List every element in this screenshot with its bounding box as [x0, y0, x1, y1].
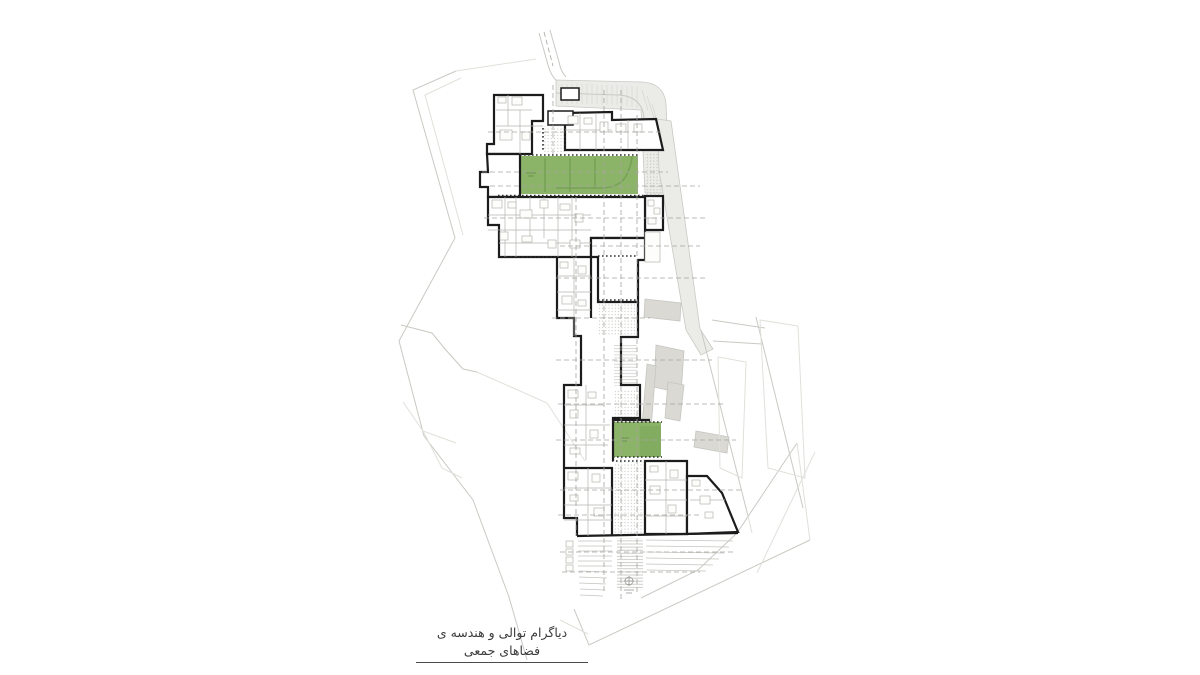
site-plan-canvas: دیاگرام توالی و هندسه ی فضاهای جمعی [0, 0, 1200, 675]
north-access-road [539, 30, 566, 81]
south-parking-rows [566, 540, 733, 596]
green-dark-patch-lower [640, 426, 661, 457]
drawing-caption: دیاگرام توالی و هندسه ی فضاهای جمعی [416, 624, 588, 663]
caption-text: دیاگرام توالی و هندسه ی فضاهای جمعی [437, 625, 567, 658]
site-plan-drawing [0, 0, 1200, 675]
